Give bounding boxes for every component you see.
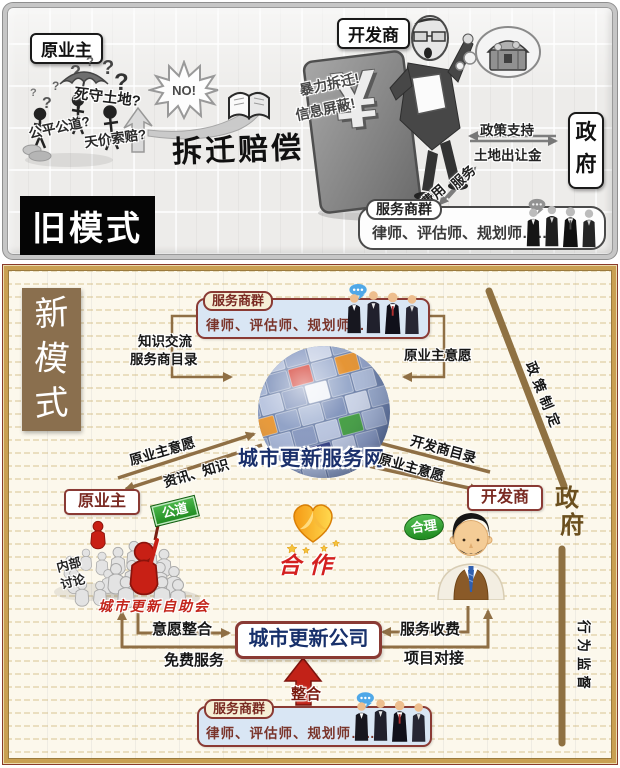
project-link-label: 项目对接 (404, 647, 464, 668)
svg-text:?: ? (102, 57, 114, 79)
old-land-fee-label: 土地出让金 (474, 144, 542, 164)
new-badge-char1: 新 (21, 289, 81, 340)
owner-will-top-label: 原业主意愿 (404, 344, 472, 364)
behavior-supervision-label: 行为监督 (575, 602, 595, 712)
svg-text:?: ? (86, 54, 94, 69)
compensation-book-icon (224, 84, 274, 128)
new-government-label: 政 府 (554, 486, 580, 540)
svg-text:?: ? (52, 79, 59, 93)
service-fee-label: 服务收费 (400, 618, 460, 639)
old-government-box: 政 府 (568, 112, 604, 189)
new-badge-char2: 模 (19, 335, 84, 384)
integrate-label: 整合 (291, 683, 321, 704)
service-group-top-people-icon (343, 283, 427, 335)
new-gov-char1: 政 (554, 486, 580, 513)
service-group-top-pill: 服务商群 (203, 291, 273, 311)
cooperation-label: 合作 (278, 546, 340, 580)
service-group-bottom-pill: 服务商群 (204, 699, 274, 719)
knowledge-exchange-label: 知识交流 (138, 330, 192, 350)
old-policy-support-label: 政策支持 (480, 119, 534, 139)
service-group-bottom-people-icon (352, 691, 432, 743)
provider-directory-label: 服务商目录 (130, 348, 198, 368)
new-gov-char2: 府 (560, 513, 580, 540)
old-model-badge: 旧模式 (20, 196, 155, 255)
will-integration-label: 意愿整合 (152, 618, 212, 639)
urban-renewal-infographic: 原业主 ? ? ? ? ? ? ? 死守土地? 公平公道? 天价索赔? NO! (0, 0, 620, 768)
developer-avatar-icon (432, 502, 510, 600)
hub-name: 城市更新服务网 (238, 442, 385, 471)
self-help-association-label: 城市更新自助会 (98, 596, 210, 616)
old-service-group-pill: 服务商群 (366, 199, 442, 220)
new-model-badge: 新 模 式 (22, 288, 81, 431)
treasure-thought-icon (446, 14, 556, 94)
svg-text:?: ? (30, 87, 37, 99)
company-box: 城市更新公司 (235, 621, 382, 659)
free-service-label: 免费服务 (164, 649, 224, 670)
old-gov-char2: 府 (570, 149, 602, 181)
old-gov-char1: 政 (570, 117, 602, 149)
old-title: 拆迁赔偿 (171, 123, 304, 172)
old-people-group-icon (524, 196, 602, 250)
new-badge-char3: 式 (22, 379, 82, 429)
